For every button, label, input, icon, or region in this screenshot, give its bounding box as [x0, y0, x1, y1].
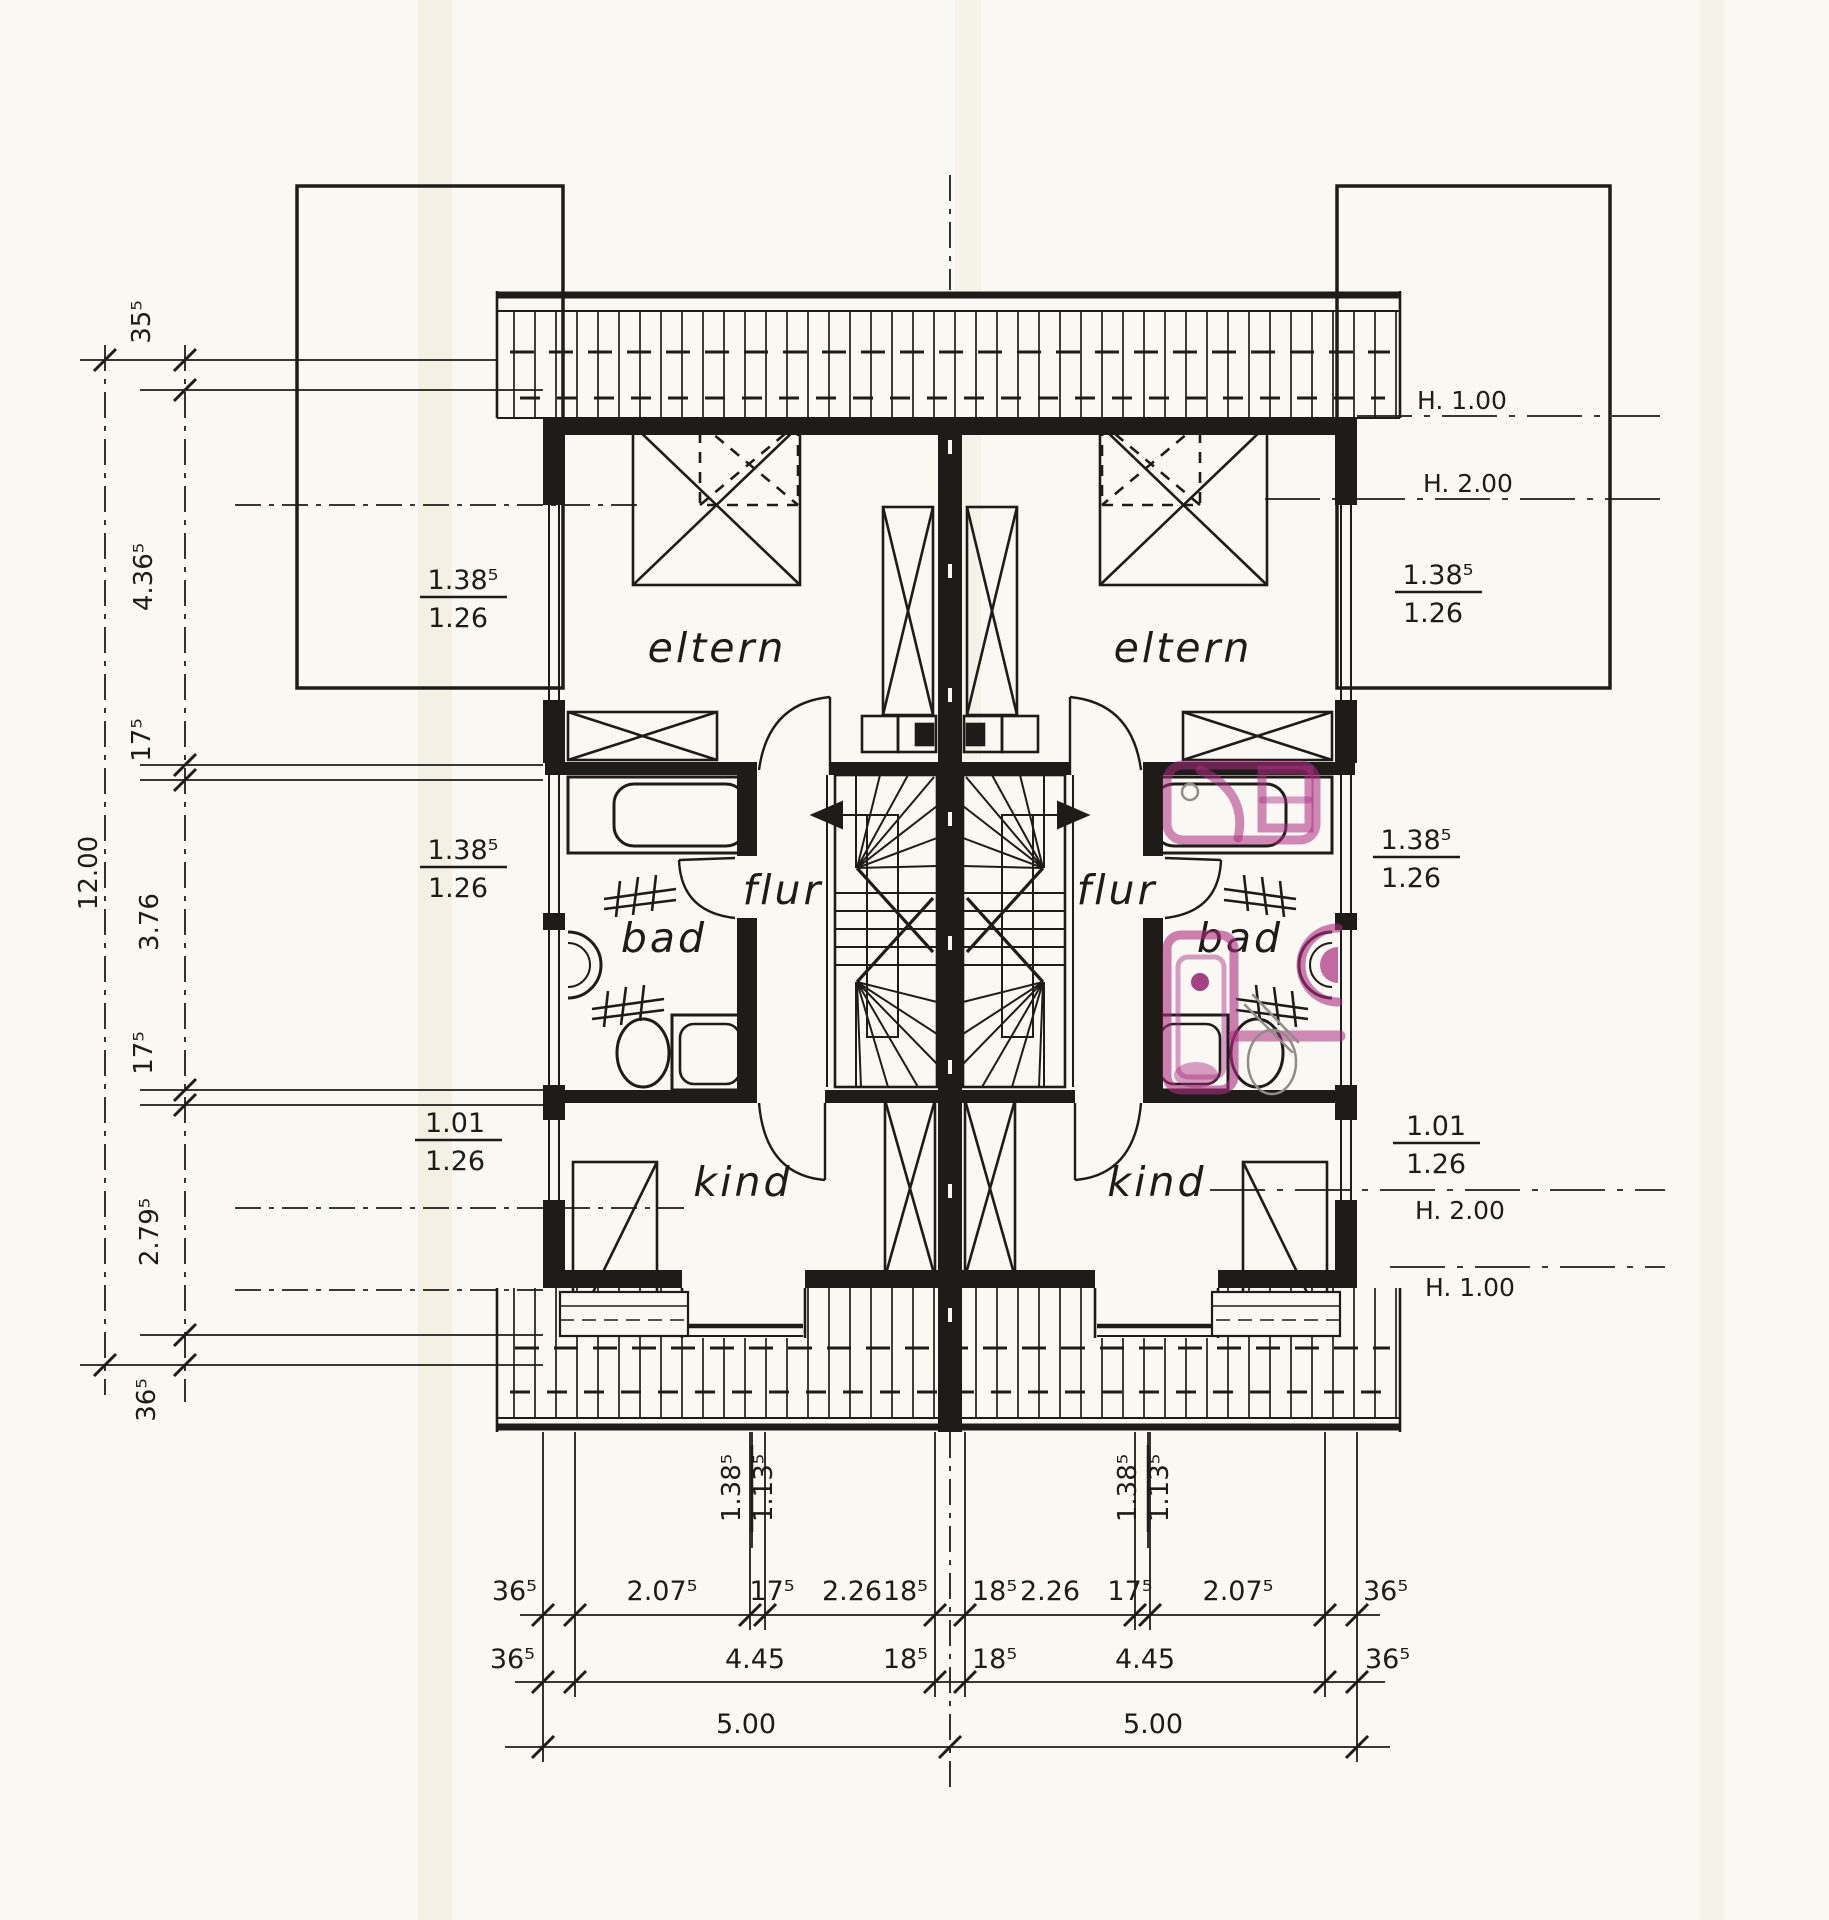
dim-left-1: 4.36⁵	[129, 543, 159, 611]
floor-plan-canvas: 35⁵ 4.36⁵ 17⁵ 3.76 17⁵ 2.79⁵ 36⁵ 12.00 H…	[0, 0, 1829, 1920]
scanned-floor-plan-page: 35⁵ 4.36⁵ 17⁵ 3.76 17⁵ 2.79⁵ 36⁵ 12.00 H…	[0, 0, 1829, 1920]
dim-b1: 18⁵	[972, 1576, 1017, 1607]
window-label-rotated: 1.13⁵	[1145, 1454, 1175, 1522]
window-label-rotated: 1.38⁵	[1113, 1454, 1143, 1522]
window-label: 1.26	[428, 603, 488, 634]
window-label: 1.01	[1406, 1111, 1466, 1142]
window-label: 1.38⁵	[428, 835, 499, 866]
dim-b1: 17⁵	[1107, 1576, 1152, 1607]
dim-left-5: 2.79⁵	[135, 1198, 165, 1266]
height-label-h100-bottom: H. 1.00	[1425, 1273, 1515, 1302]
dim-left-0: 35⁵	[127, 300, 157, 344]
window-label-rotated: 1.38⁵	[717, 1454, 747, 1522]
dim-left-3: 3.76	[135, 893, 165, 951]
window-label: 1.26	[1406, 1149, 1466, 1180]
window-label: 1.38⁵	[1403, 560, 1474, 591]
room-label-kind-right: kind	[1107, 1158, 1206, 1206]
dim-b2: 4.45	[725, 1644, 785, 1675]
dim-b1: 2.26	[1020, 1576, 1080, 1607]
window-label: 1.38⁵	[1381, 825, 1452, 856]
dim-left-4: 17⁵	[129, 1031, 159, 1075]
dim-b2: 36⁵	[490, 1644, 535, 1675]
dim-b3: 5.00	[1123, 1709, 1183, 1740]
dim-b1: 18⁵	[883, 1576, 928, 1607]
window-label: 1.26	[1381, 863, 1441, 894]
dim-b2: 36⁵	[1365, 1644, 1410, 1675]
dim-b1: 36⁵	[1363, 1576, 1408, 1607]
room-label-kind-left: kind	[693, 1158, 792, 1206]
window-label: 1.26	[428, 873, 488, 904]
window-label: 1.26	[1403, 598, 1463, 629]
window-label-rotated: 1.13⁵	[749, 1454, 779, 1522]
dim-left-overall: 12.00	[74, 836, 104, 910]
window-label: 1.26	[425, 1146, 485, 1177]
room-label-flur-right: flur	[1077, 866, 1158, 914]
room-label-eltern-left: eltern	[648, 624, 787, 672]
dim-b2: 18⁵	[883, 1644, 928, 1675]
room-label-eltern-right: eltern	[1114, 624, 1253, 672]
dim-b2: 4.45	[1115, 1644, 1175, 1675]
height-label-h200-bottom: H. 2.00	[1415, 1196, 1505, 1225]
window-label: 1.01	[425, 1108, 485, 1139]
dim-b1: 2.07⁵	[627, 1576, 698, 1607]
height-label-h200-top: H. 2.00	[1423, 469, 1513, 498]
dim-b1: 2.07⁵	[1203, 1576, 1274, 1607]
dim-b1: 2.26	[822, 1576, 882, 1607]
dim-b1: 17⁵	[749, 1576, 794, 1607]
roof-band-top	[497, 290, 1400, 418]
dim-b3: 5.00	[716, 1709, 776, 1740]
room-label-flur-left: flur	[743, 866, 824, 914]
party-wall	[938, 418, 962, 1432]
dim-b1: 36⁵	[492, 1576, 537, 1607]
dim-left-6: 36⁵	[132, 1378, 162, 1422]
paper-background	[0, 0, 1829, 1920]
dim-b2: 18⁵	[972, 1644, 1017, 1675]
height-label-h100-top: H. 1.00	[1417, 386, 1507, 415]
dim-left-2: 17⁵	[127, 718, 157, 762]
room-label-bad-left: bad	[621, 914, 707, 962]
window-label: 1.38⁵	[428, 565, 499, 596]
